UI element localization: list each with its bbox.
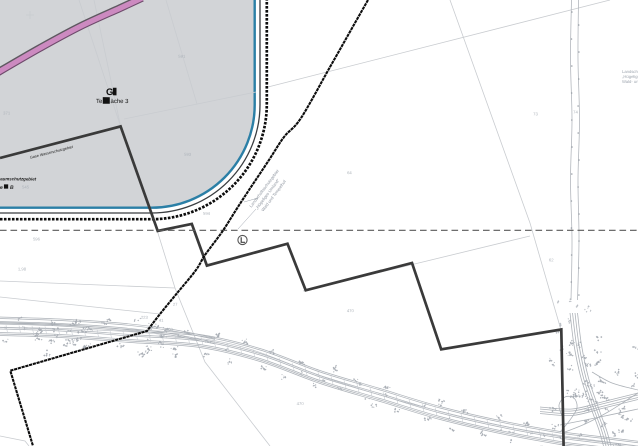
svg-text:470: 470 xyxy=(297,401,305,406)
svg-text:64: 64 xyxy=(347,170,352,175)
svg-text:74: 74 xyxy=(573,109,578,114)
svg-text:äche 3: äche 3 xyxy=(110,99,129,105)
svg-text:596: 596 xyxy=(33,237,41,242)
svg-text:e: e xyxy=(0,185,3,191)
svg-text:73: 73 xyxy=(533,111,538,116)
svg-text:400: 400 xyxy=(166,327,174,332)
svg-text:591: 591 xyxy=(178,54,186,59)
svg-text:B: B xyxy=(10,185,14,191)
svg-text:371: 371 xyxy=(3,110,11,115)
svg-text:594: 594 xyxy=(203,211,211,216)
svg-text:62: 62 xyxy=(549,257,554,262)
svg-text:593: 593 xyxy=(184,152,192,157)
svg-text:Wasserraumschutzgebiet: Wasserraumschutzgebiet xyxy=(0,176,37,181)
svg-text:545: 545 xyxy=(22,185,30,190)
svg-text:27: 27 xyxy=(173,302,178,307)
svg-text:Wald- und: Wald- und xyxy=(622,79,638,84)
svg-text:470: 470 xyxy=(347,308,355,313)
svg-text:41: 41 xyxy=(159,318,164,323)
svg-text:Te: Te xyxy=(96,99,103,105)
svg-text:G: G xyxy=(106,87,113,98)
svg-text:223: 223 xyxy=(141,315,149,320)
svg-text:1,98: 1,98 xyxy=(18,267,27,272)
